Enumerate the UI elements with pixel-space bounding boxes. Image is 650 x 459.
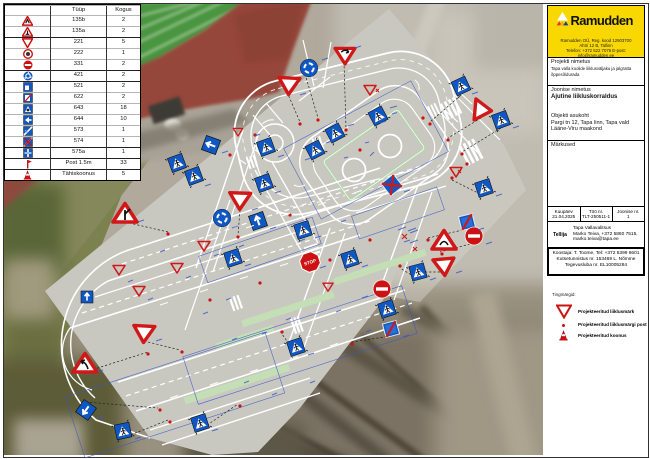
svg-text:Ramudden: Ramudden — [571, 13, 634, 28]
